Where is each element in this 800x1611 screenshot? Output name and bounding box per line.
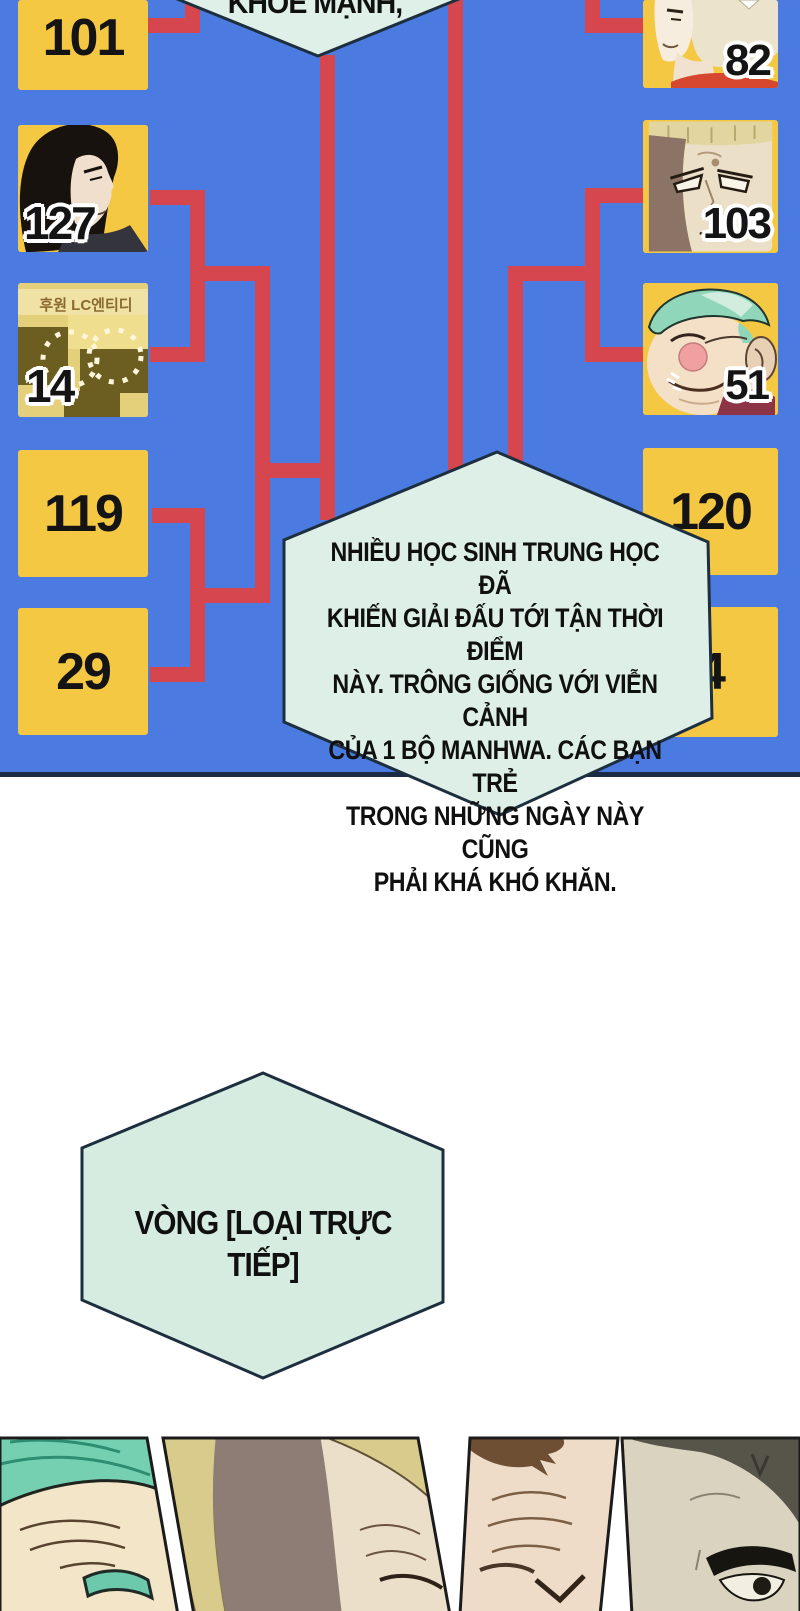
bubble-line: TIẾP]	[101, 1244, 425, 1286]
manhwa-page: 101 127 후원 LC엔티디 14 119 2	[0, 0, 800, 1611]
bubble-line: NHIỀU HỌC SINH TRUNG HỌC ĐÃ	[323, 536, 667, 602]
center-bubble-text: NHIỀU HỌC SINH TRUNG HỌC ĐÃ KHIẾN GIẢI Đ…	[323, 536, 667, 899]
bubble-line: PHẢI KHÁ KHÓ KHĂN.	[323, 866, 667, 899]
bubble-line: VÒNG [LOẠI TRỰC	[101, 1202, 425, 1244]
seed-number: 119	[18, 450, 148, 577]
panel-shadowed-face	[160, 1430, 455, 1611]
comic-panel-strip	[0, 1430, 800, 1611]
bracket-line	[585, 347, 643, 362]
seed-box-119: 119	[18, 450, 148, 577]
panel-balding-forehead	[455, 1430, 625, 1611]
seed-box-82: 82	[643, 0, 778, 88]
bracket-line	[255, 266, 270, 603]
seed-number: 103	[703, 199, 770, 249]
round-bubble-text: VÒNG [LOẠI TRỰC TIẾP]	[101, 1202, 425, 1286]
seed-number: 29	[18, 608, 148, 735]
seed-number: 51	[725, 361, 768, 409]
seed-number: 14	[26, 359, 73, 413]
bubble-line: NÀY. TRÔNG GIỐNG VỚI VIỄN CẢNH	[323, 668, 667, 734]
seed-box-14-censored: 후원 LC엔티디 14	[18, 283, 148, 417]
top-bubble-text: KHỎE MẠNH,	[145, 0, 485, 21]
korean-sponsor-caption: 후원 LC엔티디	[39, 297, 132, 314]
bracket-line	[150, 347, 205, 362]
bubble-line: TRONG NHỮNG NGÀY NÀY CŨNG	[323, 800, 667, 866]
seed-box-127: 127	[18, 125, 148, 252]
seed-number: 82	[725, 36, 770, 86]
seed-number: 127	[24, 196, 95, 250]
bracket-line	[150, 667, 205, 682]
bracket-line	[585, 18, 643, 33]
seed-box-51: 51	[643, 283, 778, 415]
bracket-line	[198, 588, 270, 603]
seed-box-103: 103	[643, 120, 778, 253]
panel-eyebrow-eye-face	[618, 1430, 800, 1611]
seed-box-29: 29	[18, 608, 148, 735]
bubble-line: KHIẾN GIẢI ĐẤU TỚI TẬN THỜI ĐIỂM	[323, 602, 667, 668]
bubble-line: CỦA 1 BỘ MANHWA. CÁC BẠN TRẺ	[323, 734, 667, 800]
